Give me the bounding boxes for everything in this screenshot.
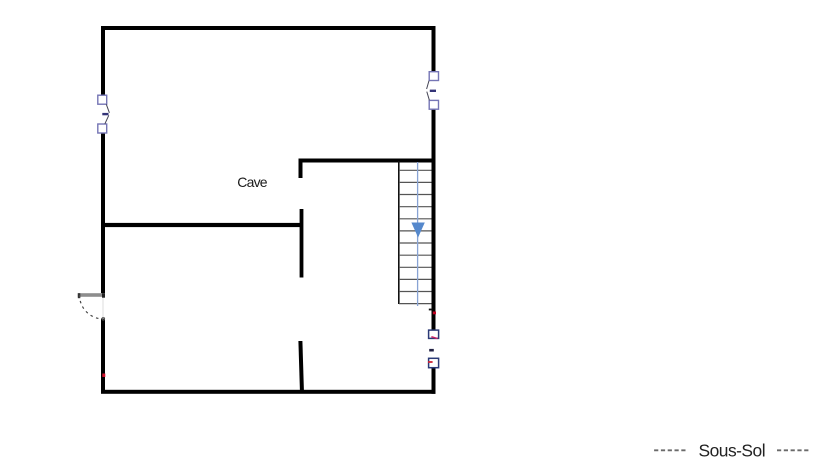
- svg-text:Cave: Cave: [237, 174, 267, 190]
- svg-text:Sous-Sol: Sous-Sol: [699, 440, 766, 460]
